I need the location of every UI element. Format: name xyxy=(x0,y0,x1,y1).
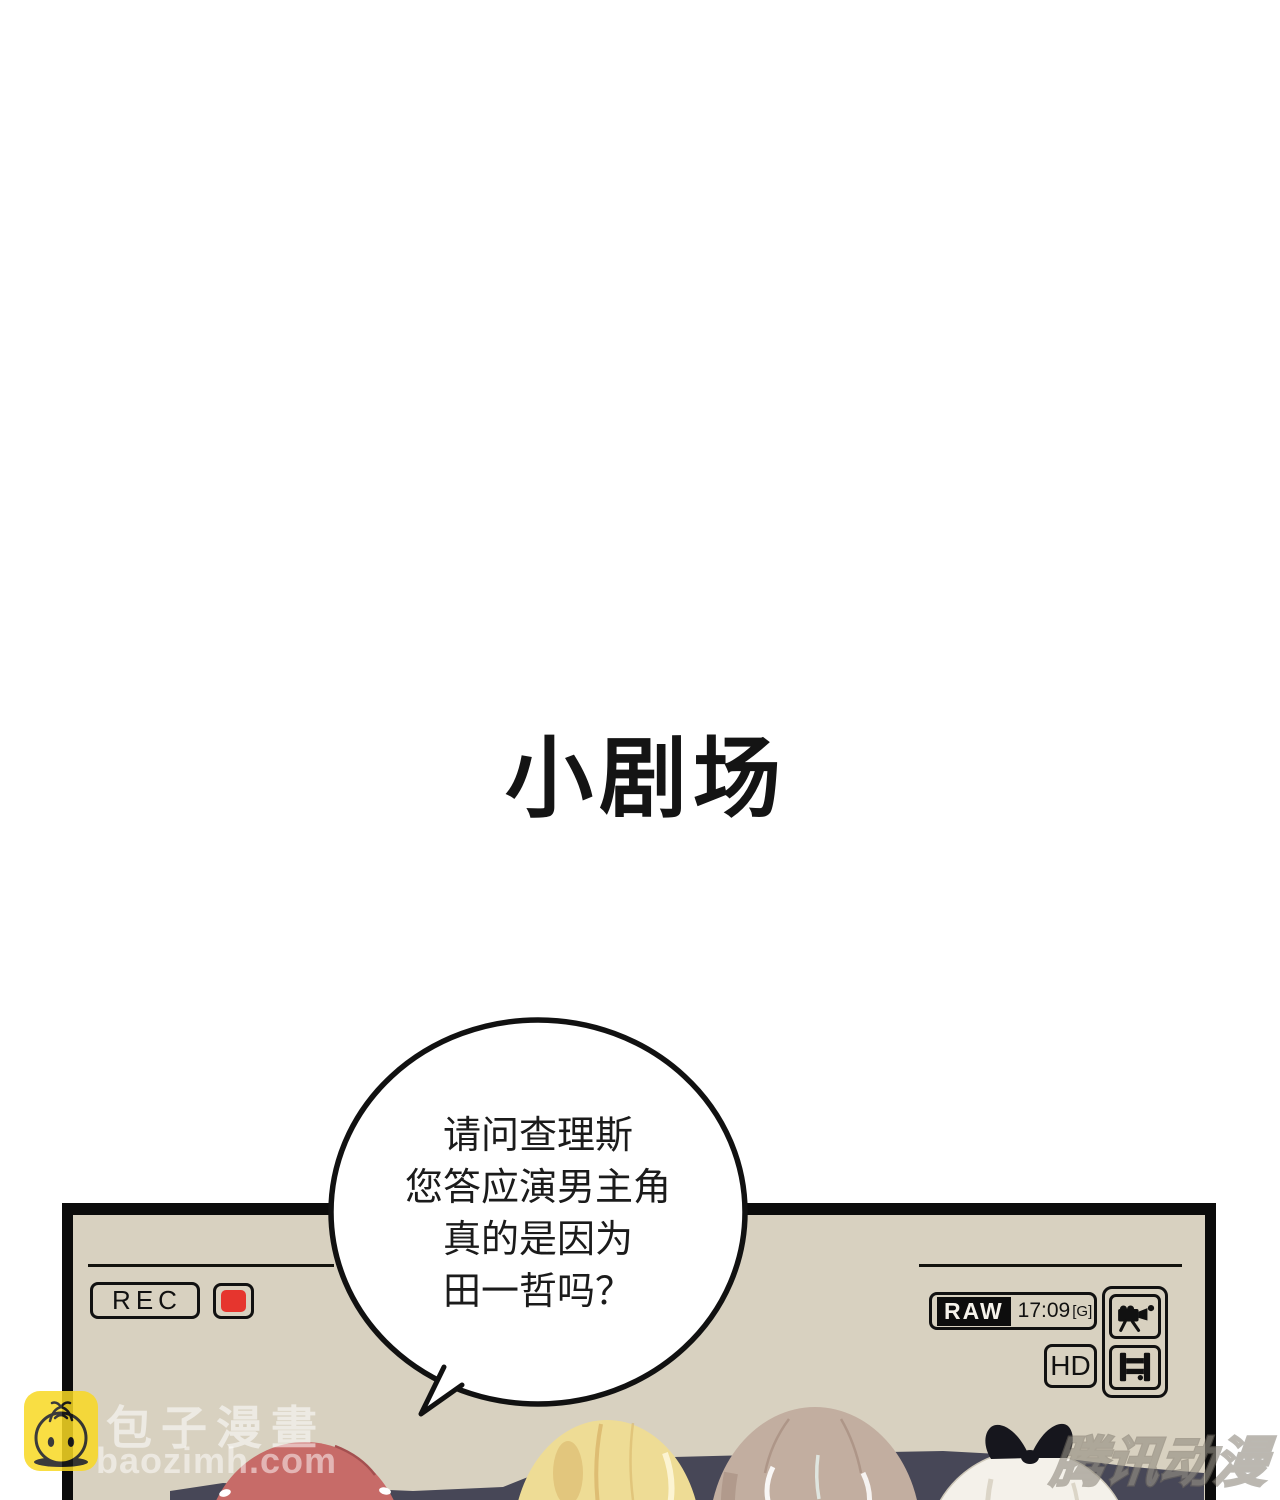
brown-haired-head xyxy=(709,1407,921,1500)
baozi-watermark-domain: baozimh.com xyxy=(96,1440,337,1482)
tencent-comics-watermark: 腾讯动漫 xyxy=(1048,1418,1272,1497)
speech-bubble-text: 请问查理斯 您答应演男主角 真的是因为 田一哲吗？ xyxy=(340,1110,736,1318)
dialogue-line: 真的是因为 xyxy=(340,1214,736,1266)
dialogue-line: 田一哲吗？ xyxy=(340,1266,736,1318)
blonde-head xyxy=(513,1420,701,1500)
dialogue-line: 您答应演男主角 xyxy=(340,1162,736,1214)
baozi-bun-logo-icon xyxy=(24,1391,98,1471)
page-title: 小剧场 xyxy=(0,731,1280,828)
comic-page: 小剧场 REC RAW 17:09 [G] HD xyxy=(0,0,1280,1500)
dialogue-line: 请问查理斯 xyxy=(340,1110,736,1162)
